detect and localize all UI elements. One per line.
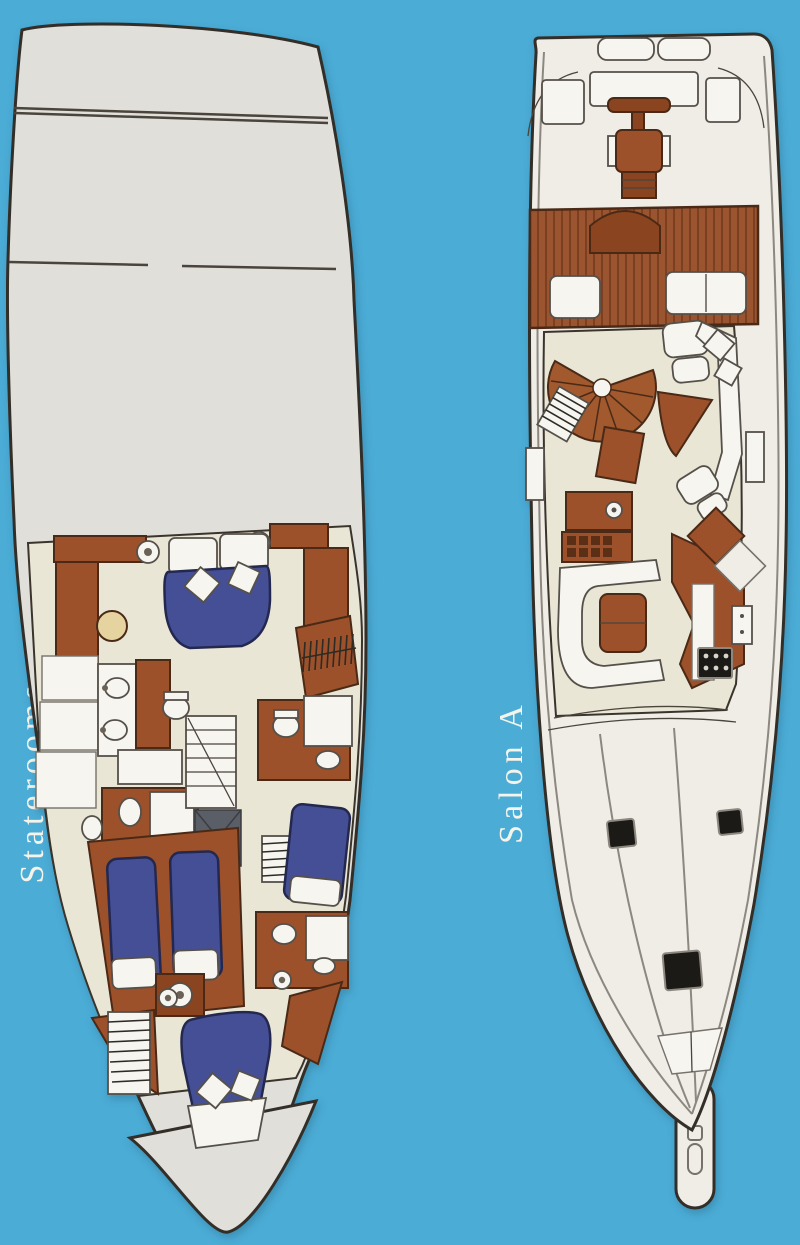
toilet	[119, 798, 141, 826]
toilet-tank	[164, 692, 188, 700]
chair-seat	[616, 130, 662, 172]
speaker-icon	[159, 989, 177, 1007]
foredeck-hatch	[717, 809, 743, 835]
salon-deck-plan	[496, 24, 796, 1220]
foredeck-hatch	[662, 950, 702, 990]
teak-cockpit-deck	[530, 206, 758, 328]
toilet	[272, 924, 296, 944]
headboard-cabinet-stbd	[270, 524, 328, 548]
shower	[306, 916, 348, 960]
side-deck-gate	[526, 448, 544, 500]
round-table	[97, 611, 127, 641]
pillow	[111, 957, 157, 989]
locker	[36, 752, 96, 808]
speaker-icon	[273, 971, 291, 989]
brochure-page: Staterooms Salon A	[0, 0, 800, 1245]
transom-hatch	[658, 38, 710, 60]
arched-table	[590, 211, 660, 253]
foredeck-hatch	[607, 819, 637, 849]
galley-cabinet	[732, 606, 752, 644]
speaker-icon	[137, 541, 159, 563]
cooktop	[698, 648, 732, 678]
cockpit-hatch	[542, 80, 584, 124]
master-wardrobe-port	[56, 562, 98, 670]
side-deck-gate	[746, 432, 764, 482]
shower	[304, 696, 352, 746]
mezzanine-bench	[550, 276, 600, 318]
drawer-sideboard	[562, 532, 632, 562]
staterooms-deck-plan	[6, 16, 374, 1240]
pedestal	[622, 172, 656, 198]
footrest	[608, 98, 670, 112]
sink	[82, 816, 102, 840]
bed-foot-cushion	[188, 1098, 266, 1148]
sink	[103, 720, 127, 740]
pillow	[289, 875, 341, 906]
headboard-cabinet-port	[54, 536, 146, 562]
shower	[118, 750, 182, 784]
locker	[42, 656, 98, 700]
transom-hatch	[598, 38, 654, 60]
sink	[105, 678, 129, 698]
sink	[313, 958, 335, 974]
ladder	[108, 1012, 150, 1094]
sink	[316, 751, 340, 769]
locker	[40, 702, 98, 750]
toilet-tank	[274, 710, 298, 718]
cockpit-hatch	[706, 78, 740, 122]
